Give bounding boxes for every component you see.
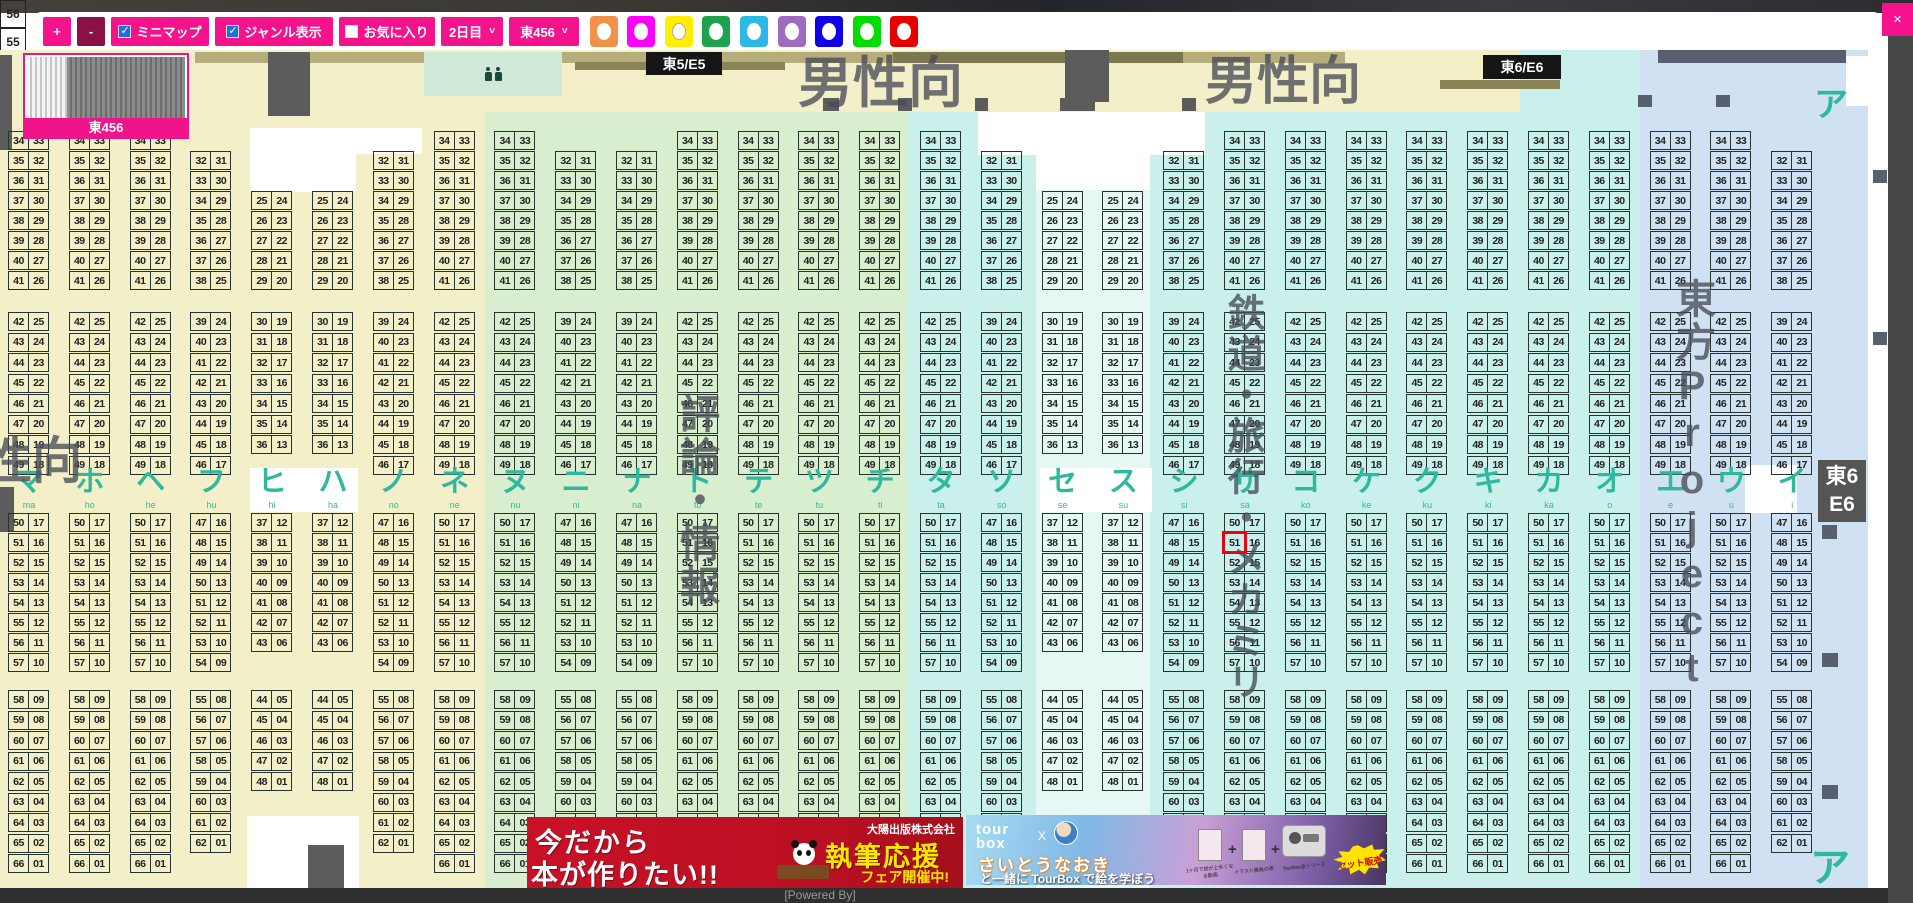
booth-ヌ08[interactable]: 08 [514, 711, 535, 730]
booth-テ50[interactable]: 50 [738, 513, 759, 532]
booth-マ60[interactable]: 60 [8, 731, 29, 750]
booth-テ63[interactable]: 63 [738, 793, 759, 812]
booth-エ60[interactable]: 60 [1650, 731, 1671, 750]
booth-ス46[interactable]: 46 [1102, 731, 1123, 750]
booth-ケ48[interactable]: 48 [1346, 435, 1367, 454]
booth-ナ39[interactable]: 39 [616, 312, 637, 331]
booth-キ48[interactable]: 48 [1467, 435, 1488, 454]
booth-ツ07[interactable]: 07 [818, 731, 839, 750]
booth-ケ58[interactable]: 58 [1346, 690, 1367, 709]
booth-ホ20[interactable]: 20 [89, 415, 110, 434]
booth-セ21[interactable]: 21 [1062, 251, 1083, 270]
booth-ホ03[interactable]: 03 [89, 813, 110, 832]
booth-ク04[interactable]: 04 [1426, 793, 1447, 812]
booth-オ08[interactable]: 08 [1609, 711, 1630, 730]
booth-ネ34[interactable]: 34 [434, 131, 455, 150]
booth-タ40[interactable]: 40 [920, 251, 941, 270]
booth-ホ14[interactable]: 14 [89, 573, 110, 592]
booth-ハ12[interactable]: 12 [332, 513, 353, 532]
booth-キ34[interactable]: 34 [1467, 131, 1488, 150]
booth-チ63[interactable]: 63 [859, 793, 880, 812]
booth-ヒ46[interactable]: 46 [251, 731, 272, 750]
booth-オ02[interactable]: 02 [1609, 834, 1630, 853]
booth-サ61[interactable]: 61 [1224, 752, 1245, 771]
booth-キ64[interactable]: 64 [1467, 813, 1488, 832]
booth-セ34[interactable]: 34 [1042, 394, 1063, 413]
booth-イ50[interactable]: 50 [1771, 573, 1792, 592]
booth-キ65[interactable]: 65 [1467, 834, 1488, 853]
booth-オ53[interactable]: 53 [1589, 573, 1610, 592]
booth-エ46[interactable]: 46 [1650, 394, 1671, 413]
booth-ソ21[interactable]: 21 [1001, 374, 1022, 393]
booth-ホ01[interactable]: 01 [89, 854, 110, 873]
booth-キ37[interactable]: 37 [1467, 191, 1488, 210]
booth-ホ10[interactable]: 10 [89, 653, 110, 672]
booth-ス32[interactable]: 32 [1102, 353, 1123, 372]
booth-エ35[interactable]: 35 [1650, 151, 1671, 170]
booth-ク58[interactable]: 58 [1406, 690, 1427, 709]
booth-イ45[interactable]: 45 [1771, 435, 1792, 454]
booth-エ48[interactable]: 48 [1650, 435, 1671, 454]
booth-ニ48[interactable]: 48 [555, 533, 576, 552]
booth-ノ37[interactable]: 37 [373, 251, 394, 270]
booth-ホ53[interactable]: 53 [69, 573, 90, 592]
booth-コ53[interactable]: 53 [1285, 573, 1306, 592]
booth-フ35[interactable]: 35 [190, 211, 211, 230]
booth-ニ07[interactable]: 07 [575, 711, 596, 730]
booth-コ09[interactable]: 09 [1305, 690, 1326, 709]
booth-ト25[interactable]: 25 [697, 312, 718, 331]
booth-テ40[interactable]: 40 [738, 251, 759, 270]
booth-カ21[interactable]: 21 [1548, 394, 1569, 413]
booth-カ22[interactable]: 22 [1548, 374, 1569, 393]
booth-カ43[interactable]: 43 [1528, 333, 1549, 352]
booth-ネ54[interactable]: 54 [434, 593, 455, 612]
booth-オ38[interactable]: 38 [1589, 211, 1610, 230]
booth-ホ39[interactable]: 39 [69, 231, 90, 250]
booth-ホ32[interactable]: 32 [89, 151, 110, 170]
booth-オ23[interactable]: 23 [1609, 353, 1630, 372]
booth-カ63[interactable]: 63 [1528, 793, 1549, 812]
booth-ツ19[interactable]: 19 [818, 435, 839, 454]
booth-テ34[interactable]: 34 [738, 131, 759, 150]
booth-タ63[interactable]: 63 [920, 793, 941, 812]
booth-チ22[interactable]: 22 [879, 374, 900, 393]
booth-ツ57[interactable]: 57 [798, 653, 819, 672]
booth-ヘ51[interactable]: 51 [130, 533, 151, 552]
booth-ス08[interactable]: 08 [1122, 593, 1143, 612]
booth-テ32[interactable]: 32 [758, 151, 779, 170]
booth-ス44[interactable]: 44 [1102, 690, 1123, 709]
booth-セ30[interactable]: 30 [1042, 312, 1063, 331]
booth-コ37[interactable]: 37 [1285, 191, 1306, 210]
booth-ケ07[interactable]: 07 [1366, 731, 1387, 750]
booth-ヌ19[interactable]: 19 [514, 435, 535, 454]
booth-コ55[interactable]: 55 [1285, 613, 1306, 632]
booth-チ07[interactable]: 07 [879, 731, 900, 750]
booth-ネ25[interactable]: 25 [454, 312, 475, 331]
booth-カ11[interactable]: 11 [1548, 633, 1569, 652]
booth-セ47[interactable]: 47 [1042, 752, 1063, 771]
booth-ク50[interactable]: 50 [1406, 513, 1427, 532]
booth-タ46[interactable]: 46 [920, 394, 941, 413]
booth-コ23[interactable]: 23 [1305, 353, 1326, 372]
booth-ヌ61[interactable]: 61 [494, 752, 515, 771]
booth-ハ35[interactable]: 35 [312, 415, 333, 434]
booth-マ16[interactable]: 16 [28, 533, 49, 552]
booth-ツ31[interactable]: 31 [818, 171, 839, 190]
booth-ノ34[interactable]: 34 [373, 191, 394, 210]
booth-セ16[interactable]: 16 [1062, 374, 1083, 393]
booth-イ39[interactable]: 39 [1771, 312, 1792, 331]
booth-チ19[interactable]: 19 [879, 435, 900, 454]
genre-color-button-6[interactable] [815, 16, 843, 47]
booth-ホ65[interactable]: 65 [69, 834, 90, 853]
booth-カ52[interactable]: 52 [1528, 553, 1549, 572]
booth-エ04[interactable]: 04 [1670, 793, 1691, 812]
booth-エ27[interactable]: 27 [1670, 251, 1691, 270]
booth-ホ21[interactable]: 21 [89, 394, 110, 413]
booth-ナ24[interactable]: 24 [636, 312, 657, 331]
booth-ヘ22[interactable]: 22 [150, 374, 171, 393]
booth-イ44[interactable]: 44 [1771, 415, 1792, 434]
booth-イ08[interactable]: 08 [1791, 690, 1812, 709]
booth-チ20[interactable]: 20 [879, 415, 900, 434]
booth-キ39[interactable]: 39 [1467, 231, 1488, 250]
booth-オ50[interactable]: 50 [1589, 513, 1610, 532]
booth-ネ43[interactable]: 43 [434, 333, 455, 352]
booth-ケ23[interactable]: 23 [1366, 353, 1387, 372]
booth-ネ26[interactable]: 26 [454, 271, 475, 290]
booth-ナ22[interactable]: 22 [636, 353, 657, 372]
booth-チ52[interactable]: 52 [859, 553, 880, 572]
booth-ヘ07[interactable]: 07 [150, 731, 171, 750]
booth-ヌ07[interactable]: 07 [514, 731, 535, 750]
booth-ウ08[interactable]: 08 [1730, 711, 1751, 730]
booth-ホ16[interactable]: 16 [89, 533, 110, 552]
booth-ト58[interactable]: 58 [677, 690, 698, 709]
booth-ウ07[interactable]: 07 [1730, 731, 1751, 750]
booth-ホ42[interactable]: 42 [69, 312, 90, 331]
favorites-checkbox[interactable] [345, 25, 358, 38]
booth-ウ66[interactable]: 66 [1710, 854, 1731, 873]
booth-オ25[interactable]: 25 [1609, 312, 1630, 331]
booth-ナ55[interactable]: 55 [616, 690, 637, 709]
booth-ト43[interactable]: 43 [677, 333, 698, 352]
booth-コ50[interactable]: 50 [1285, 513, 1306, 532]
booth-ツ61[interactable]: 61 [798, 752, 819, 771]
booth-タ08[interactable]: 08 [940, 711, 961, 730]
booth-シ30[interactable]: 30 [1183, 171, 1204, 190]
booth-セ39[interactable]: 39 [1042, 553, 1063, 572]
booth-ス03[interactable]: 03 [1122, 731, 1143, 750]
booth-ク48[interactable]: 48 [1406, 435, 1427, 454]
booth-ネ11[interactable]: 11 [454, 633, 475, 652]
booth-ホ04[interactable]: 04 [89, 793, 110, 812]
booth-ネ01[interactable]: 01 [454, 854, 475, 873]
booth-カ42[interactable]: 42 [1528, 312, 1549, 331]
booth-キ02[interactable]: 02 [1487, 834, 1508, 853]
booth-フ24[interactable]: 24 [210, 312, 231, 331]
booth-チ43[interactable]: 43 [859, 333, 880, 352]
booth-ヌ66[interactable]: 66 [494, 854, 515, 873]
booth-カ56[interactable]: 56 [1528, 633, 1549, 652]
booth-ネ53[interactable]: 53 [434, 573, 455, 592]
booth-シ14[interactable]: 14 [1183, 553, 1204, 572]
booth-ヘ05[interactable]: 05 [150, 772, 171, 791]
booth-ト08[interactable]: 08 [697, 711, 718, 730]
booth-フ13[interactable]: 13 [210, 573, 231, 592]
booth-シ07[interactable]: 07 [1183, 711, 1204, 730]
booth-チ31[interactable]: 31 [879, 171, 900, 190]
booth-チ48[interactable]: 48 [859, 435, 880, 454]
booth-ハ33[interactable]: 33 [312, 374, 333, 393]
booth-ト36[interactable]: 36 [677, 171, 698, 190]
booth-テ13[interactable]: 13 [758, 593, 779, 612]
booth-ハ27[interactable]: 27 [312, 231, 333, 250]
booth-テ22[interactable]: 22 [758, 374, 779, 393]
booth-タ45[interactable]: 45 [920, 374, 941, 393]
booth-チ06[interactable]: 06 [879, 752, 900, 771]
booth-ホ56[interactable]: 56 [69, 633, 90, 652]
booth-ス23[interactable]: 23 [1122, 211, 1143, 230]
booth-ネ23[interactable]: 23 [454, 353, 475, 372]
booth-ケ11[interactable]: 11 [1366, 633, 1387, 652]
booth-ウ28[interactable]: 28 [1730, 231, 1751, 250]
booth-エ02[interactable]: 02 [1670, 834, 1691, 853]
booth-ナ27[interactable]: 27 [636, 231, 657, 250]
booth-フ49[interactable]: 49 [190, 553, 211, 572]
booth-マ21[interactable]: 21 [28, 394, 49, 413]
booth-シ25[interactable]: 25 [1183, 271, 1204, 290]
booth-セ38[interactable]: 38 [1042, 533, 1063, 552]
booth-フ15[interactable]: 15 [210, 533, 231, 552]
booth-ヌ56[interactable]: 56 [494, 633, 515, 652]
booth-ノ32[interactable]: 32 [373, 151, 394, 170]
booth-イ16[interactable]: 16 [1791, 513, 1812, 532]
booth-ヘ66[interactable]: 66 [130, 854, 151, 873]
booth-イ36[interactable]: 36 [1771, 231, 1792, 250]
booth-エ51[interactable]: 51 [1650, 533, 1671, 552]
booth-エ43[interactable]: 43 [1650, 333, 1671, 352]
booth-ク12[interactable]: 12 [1426, 613, 1447, 632]
booth-テ54[interactable]: 54 [738, 593, 759, 612]
booth-テ60[interactable]: 60 [738, 731, 759, 750]
booth-オ04[interactable]: 04 [1609, 793, 1630, 812]
booth-シ43[interactable]: 43 [1163, 394, 1184, 413]
booth-ノ28[interactable]: 28 [393, 211, 414, 230]
booth-ナ43[interactable]: 43 [616, 394, 637, 413]
booth-キ26[interactable]: 26 [1487, 271, 1508, 290]
booth-ヌ14[interactable]: 14 [514, 573, 535, 592]
booth-ス34[interactable]: 34 [1102, 394, 1123, 413]
booth-ケ34[interactable]: 34 [1346, 131, 1367, 150]
booth-シ57[interactable]: 57 [1163, 731, 1184, 750]
booth-ト04[interactable]: 04 [697, 793, 718, 812]
booth-テ20[interactable]: 20 [758, 415, 779, 434]
booth-テ57[interactable]: 57 [738, 653, 759, 672]
booth-ヘ08[interactable]: 08 [150, 711, 171, 730]
booth-テ42[interactable]: 42 [738, 312, 759, 331]
booth-キ29[interactable]: 29 [1487, 211, 1508, 230]
booth-ケ61[interactable]: 61 [1346, 752, 1367, 771]
booth-ス15[interactable]: 15 [1122, 394, 1143, 413]
booth-オ12[interactable]: 12 [1609, 613, 1630, 632]
booth-シ60[interactable]: 60 [1163, 793, 1184, 812]
booth-イ53[interactable]: 53 [1771, 633, 1792, 652]
booth-チ59[interactable]: 59 [859, 711, 880, 730]
booth-ナ42[interactable]: 42 [616, 374, 637, 393]
booth-テ56[interactable]: 56 [738, 633, 759, 652]
booth-ニ40[interactable]: 40 [555, 333, 576, 352]
booth-ナ48[interactable]: 48 [616, 533, 637, 552]
booth-カ33[interactable]: 33 [1548, 131, 1569, 150]
booth-ナ41[interactable]: 41 [616, 353, 637, 372]
booth-フ08[interactable]: 08 [210, 690, 231, 709]
wall-booth-56[interactable]: 56 [0, 0, 26, 28]
booth-ノ38[interactable]: 38 [373, 271, 394, 290]
booth-ハ46[interactable]: 46 [312, 731, 333, 750]
booth-ツ42[interactable]: 42 [798, 312, 819, 331]
booth-ネ28[interactable]: 28 [454, 231, 475, 250]
booth-ヒ42[interactable]: 42 [251, 613, 272, 632]
booth-ネ59[interactable]: 59 [434, 711, 455, 730]
booth-サ06[interactable]: 06 [1244, 752, 1265, 771]
booth-チ39[interactable]: 39 [859, 231, 880, 250]
ad-banner-taiyo-shuppan[interactable]: 今だから 本が作りたい!! 大陽出版株式会社 執筆応援 フェア開催中! [527, 817, 963, 888]
booth-タ58[interactable]: 58 [920, 690, 941, 709]
booth-ケ21[interactable]: 21 [1366, 394, 1387, 413]
booth-シ11[interactable]: 11 [1183, 613, 1204, 632]
booth-マ43[interactable]: 43 [8, 333, 29, 352]
booth-チ57[interactable]: 57 [859, 653, 880, 672]
booth-ニ16[interactable]: 16 [575, 513, 596, 532]
booth-ホ27[interactable]: 27 [89, 251, 110, 270]
booth-ヘ57[interactable]: 57 [130, 653, 151, 672]
booth-フ61[interactable]: 61 [190, 813, 211, 832]
booth-ニ24[interactable]: 24 [575, 312, 596, 331]
booth-ヘ09[interactable]: 09 [150, 690, 171, 709]
booth-チ05[interactable]: 05 [879, 772, 900, 791]
booth-イ60[interactable]: 60 [1771, 793, 1792, 812]
booth-ハ31[interactable]: 31 [312, 333, 333, 352]
booth-ソ12[interactable]: 12 [1001, 593, 1022, 612]
booth-ス36[interactable]: 36 [1102, 435, 1123, 454]
booth-ク01[interactable]: 01 [1426, 854, 1447, 873]
booth-エ47[interactable]: 47 [1650, 415, 1671, 434]
booth-セ37[interactable]: 37 [1042, 513, 1063, 532]
booth-ハ36[interactable]: 36 [312, 435, 333, 454]
booth-テ11[interactable]: 11 [758, 633, 779, 652]
booth-オ37[interactable]: 37 [1589, 191, 1610, 210]
booth-ヒ44[interactable]: 44 [251, 690, 272, 709]
booth-チ10[interactable]: 10 [879, 653, 900, 672]
booth-ネ14[interactable]: 14 [454, 573, 475, 592]
booth-エ01[interactable]: 01 [1670, 854, 1691, 873]
booth-イ61[interactable]: 61 [1771, 813, 1792, 832]
booth-タ24[interactable]: 24 [940, 333, 961, 352]
booth-ヘ64[interactable]: 64 [130, 813, 151, 832]
booth-ハ25[interactable]: 25 [312, 191, 333, 210]
booth-ヘ43[interactable]: 43 [130, 333, 151, 352]
booth-ク51[interactable]: 51 [1406, 533, 1427, 552]
booth-チ55[interactable]: 55 [859, 613, 880, 632]
booth-ナ20[interactable]: 20 [636, 394, 657, 413]
booth-イ04[interactable]: 04 [1791, 772, 1812, 791]
booth-ネ12[interactable]: 12 [454, 613, 475, 632]
booth-テ48[interactable]: 48 [738, 435, 759, 454]
booth-コ05[interactable]: 05 [1305, 772, 1326, 791]
booth-コ16[interactable]: 16 [1305, 533, 1326, 552]
booth-ソ49[interactable]: 49 [981, 553, 1002, 572]
booth-フ14[interactable]: 14 [210, 553, 231, 572]
booth-タ42[interactable]: 42 [920, 312, 941, 331]
booth-ト22[interactable]: 22 [697, 374, 718, 393]
booth-ナ23[interactable]: 23 [636, 333, 657, 352]
booth-コ22[interactable]: 22 [1305, 374, 1326, 393]
booth-シ19[interactable]: 19 [1183, 415, 1204, 434]
booth-ホ19[interactable]: 19 [89, 435, 110, 454]
booth-キ12[interactable]: 12 [1487, 613, 1508, 632]
booth-ヘ38[interactable]: 38 [130, 211, 151, 230]
booth-チ08[interactable]: 08 [879, 711, 900, 730]
booth-サ04[interactable]: 04 [1244, 793, 1265, 812]
booth-ネ02[interactable]: 02 [454, 834, 475, 853]
booth-フ47[interactable]: 47 [190, 513, 211, 532]
booth-ツ12[interactable]: 12 [818, 613, 839, 632]
booth-サ27[interactable]: 27 [1244, 251, 1265, 270]
booth-ナ05[interactable]: 05 [636, 752, 657, 771]
booth-カ62[interactable]: 62 [1528, 772, 1549, 791]
booth-ス07[interactable]: 07 [1122, 613, 1143, 632]
booth-ネ30[interactable]: 30 [454, 191, 475, 210]
booth-フ43[interactable]: 43 [190, 394, 211, 413]
booth-ク56[interactable]: 56 [1406, 633, 1427, 652]
booth-ホ17[interactable]: 17 [89, 513, 110, 532]
booth-ノ44[interactable]: 44 [373, 415, 394, 434]
booth-ケ19[interactable]: 19 [1366, 435, 1387, 454]
booth-ニ31[interactable]: 31 [575, 151, 596, 170]
booth-サ59[interactable]: 59 [1224, 711, 1245, 730]
booth-チ34[interactable]: 34 [859, 131, 880, 150]
booth-チ54[interactable]: 54 [859, 593, 880, 612]
booth-コ15[interactable]: 15 [1305, 553, 1326, 572]
booth-ウ19[interactable]: 19 [1730, 435, 1751, 454]
booth-ケ31[interactable]: 31 [1366, 171, 1387, 190]
day-select-dropdown[interactable]: 2日目 ˅ [441, 17, 503, 46]
booth-マ23[interactable]: 23 [28, 353, 49, 372]
booth-ヒ37[interactable]: 37 [251, 513, 272, 532]
booth-セ43[interactable]: 43 [1042, 633, 1063, 652]
booth-ノ42[interactable]: 42 [373, 374, 394, 393]
booth-ヘ23[interactable]: 23 [150, 353, 171, 372]
booth-ツ53[interactable]: 53 [798, 573, 819, 592]
booth-イ25[interactable]: 25 [1791, 271, 1812, 290]
booth-ケ63[interactable]: 63 [1346, 793, 1367, 812]
booth-キ57[interactable]: 57 [1467, 653, 1488, 672]
booth-ニ15[interactable]: 15 [575, 533, 596, 552]
booth-コ43[interactable]: 43 [1285, 333, 1306, 352]
booth-ニ51[interactable]: 51 [555, 593, 576, 612]
booth-エ62[interactable]: 62 [1650, 772, 1671, 791]
booth-ヘ29[interactable]: 29 [150, 211, 171, 230]
booth-ヘ59[interactable]: 59 [130, 711, 151, 730]
booth-ヌ35[interactable]: 35 [494, 151, 515, 170]
booth-カ28[interactable]: 28 [1548, 231, 1569, 250]
booth-テ30[interactable]: 30 [758, 191, 779, 210]
booth-フ48[interactable]: 48 [190, 533, 211, 552]
booth-ツ51[interactable]: 51 [798, 533, 819, 552]
